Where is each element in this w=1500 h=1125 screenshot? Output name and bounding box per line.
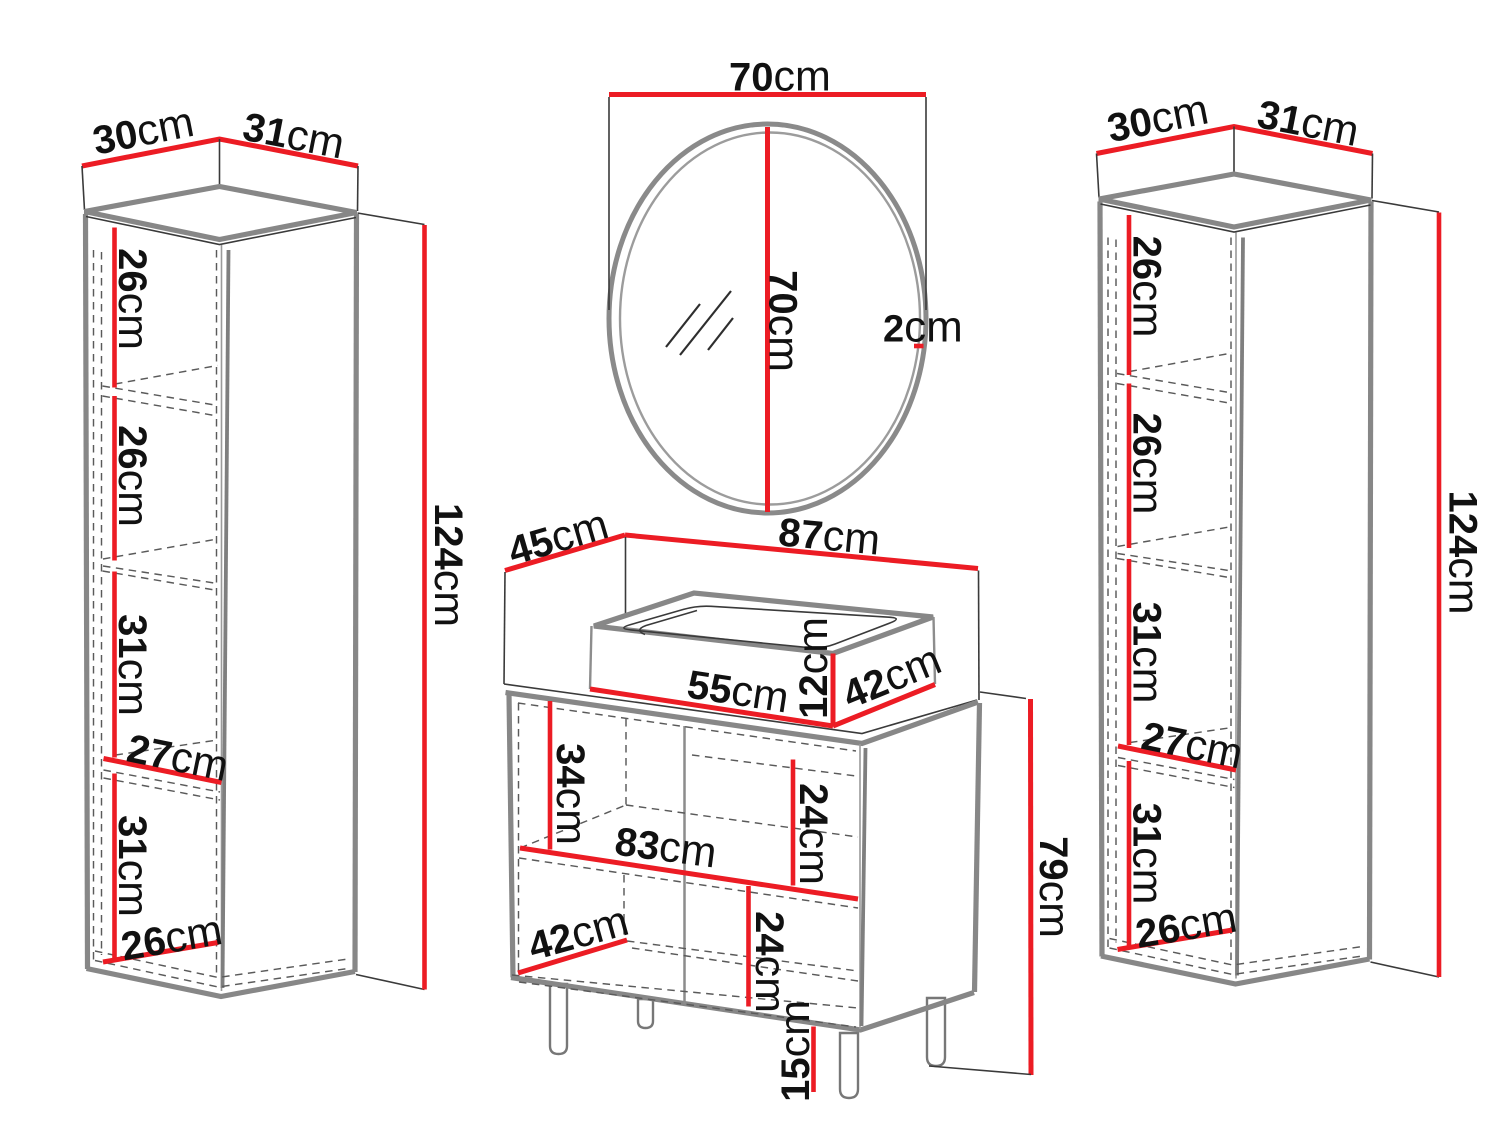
svg-text:24cm: 24cm xyxy=(746,911,794,1013)
svg-text:31cm: 31cm xyxy=(109,614,157,716)
svg-text:124cm: 124cm xyxy=(425,503,473,627)
svg-text:26cm: 26cm xyxy=(109,248,157,350)
svg-text:2cm: 2cm xyxy=(883,303,963,352)
svg-text:34cm: 34cm xyxy=(547,743,595,845)
svg-text:79cm: 79cm xyxy=(1030,836,1078,938)
svg-text:24cm: 24cm xyxy=(790,783,838,885)
svg-text:12cm: 12cm xyxy=(789,617,837,719)
svg-text:31cm: 31cm xyxy=(109,815,157,917)
svg-text:26cm: 26cm xyxy=(109,425,157,527)
svg-text:15cm: 15cm xyxy=(771,1000,819,1102)
svg-text:70cm: 70cm xyxy=(729,53,831,101)
svg-text:70cm: 70cm xyxy=(760,270,808,372)
